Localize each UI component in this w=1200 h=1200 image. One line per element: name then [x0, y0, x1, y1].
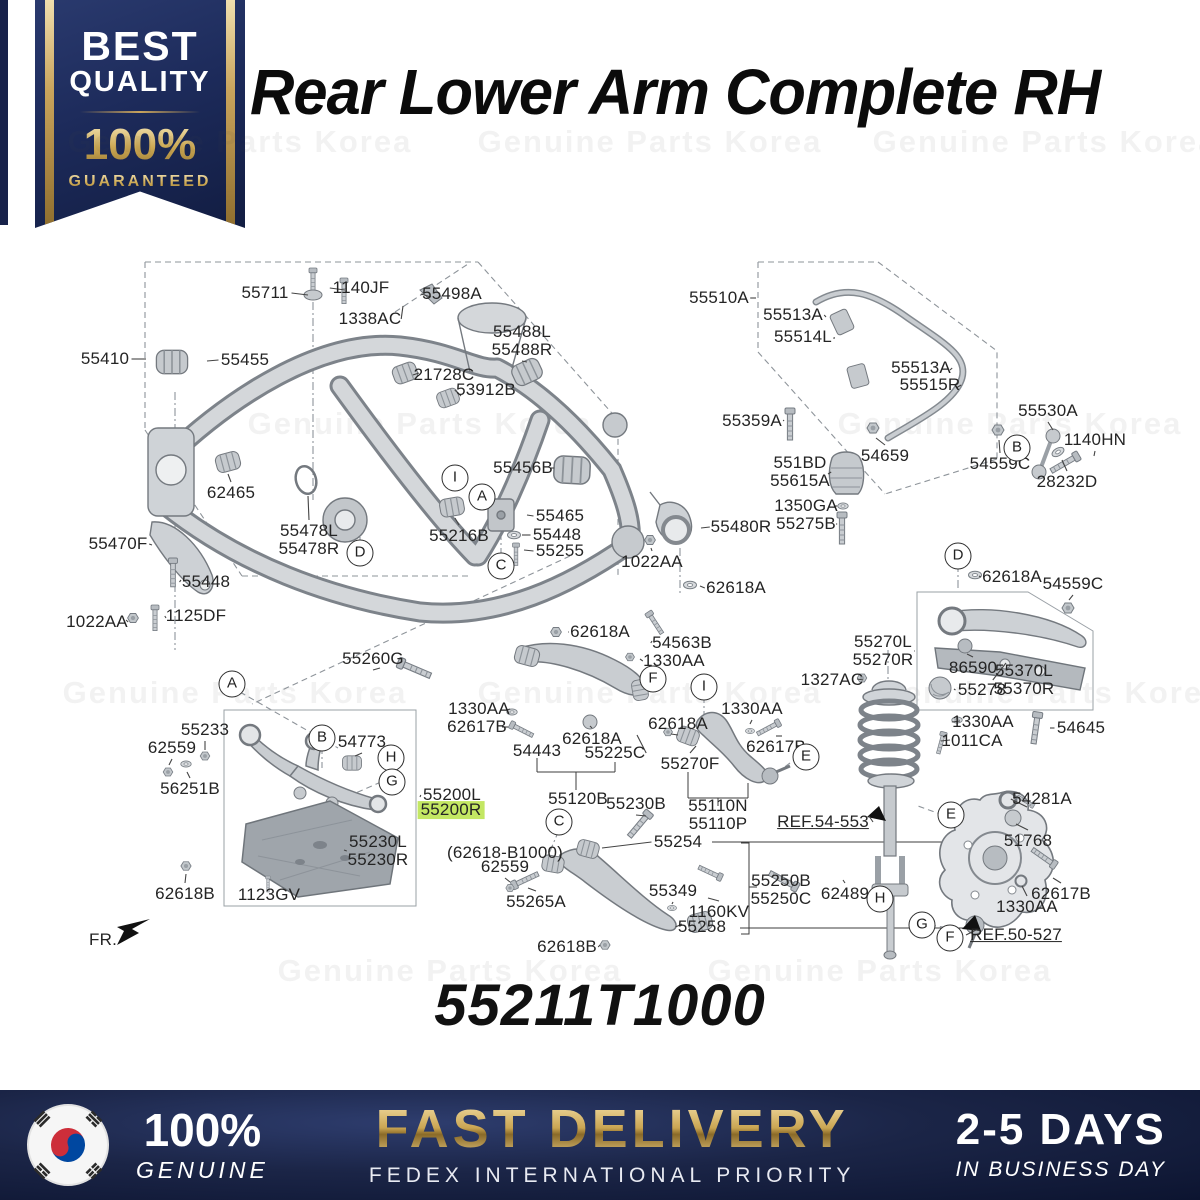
part-label-55200R: 55200R [418, 801, 485, 819]
part-number: 55211T1000 [0, 972, 1200, 1039]
part-label-55711: 55711 [241, 284, 288, 302]
part-label-54773: 54773 [338, 733, 386, 751]
part-label-55515R: 55515R [900, 376, 961, 394]
part-label-55278: 55278 [958, 681, 1006, 699]
part-label-1011CA: 1011CA [941, 732, 1002, 750]
part-label-1022AA: 1022AA [621, 553, 683, 571]
part-label-55470F: 55470F [89, 535, 148, 553]
part-label-55260G: 55260G [342, 650, 404, 668]
footer-fast-delivery: FAST DELIVERY [269, 1102, 956, 1156]
part-label-55265A: 55265A [506, 893, 566, 911]
callout-c: C [488, 553, 515, 580]
part-label-54281A: 54281A [1012, 790, 1072, 808]
part-label-55258: 55258 [678, 918, 726, 936]
part-label-1330AA: 1330AA [448, 700, 510, 718]
part-label-86590: 86590 [949, 659, 997, 677]
part-label-55225C: 55225C [585, 744, 646, 762]
footer-genuine-percent: 100% [136, 1107, 269, 1153]
part-label-62618A: 62618A [648, 715, 708, 733]
part-label-55254: 55254 [654, 833, 702, 851]
part-label-53912B: 53912B [456, 381, 516, 399]
part-label-62618B: 62618B [155, 885, 215, 903]
part-label-55120B: 55120B [548, 790, 608, 808]
best-quality-badge: BEST QUALITY 100% GUARANTEED [35, 0, 245, 228]
badge-guaranteed: GUARANTEED [35, 173, 245, 191]
part-label-55230B: 55230B [606, 795, 666, 813]
part-label-51768: 51768 [1004, 832, 1052, 850]
badge-divider [80, 111, 200, 113]
footer-banner: 100% GENUINE FAST DELIVERY FEDEX INTERNA… [0, 1090, 1200, 1200]
page-title: Rear Lower Arm Complete RH [250, 55, 1100, 129]
callout-c: C [546, 809, 573, 836]
badge-gold-stripe [226, 0, 235, 228]
part-label-55488L-55488R: 55488L 55488R [492, 323, 553, 359]
part-label-55255: 55255 [536, 542, 584, 560]
part-label-55465: 55465 [536, 507, 584, 525]
callout-e: E [938, 802, 965, 829]
part-label-55110N-55110P: 55110N 55110P [688, 797, 748, 833]
footer-genuine-label: GENUINE [136, 1157, 269, 1184]
part-label-56251B: 56251B [160, 780, 220, 798]
part-label-55275B: 55275B [776, 515, 836, 533]
callout-g: G [909, 912, 936, 939]
part-label-55349: 55349 [649, 882, 697, 900]
footer-days: 2-5 DAYS [956, 1108, 1167, 1152]
callout-b: B [309, 725, 336, 752]
part-label-54563B: 54563B [652, 634, 712, 652]
part-label-1327AC: 1327AC [801, 671, 864, 689]
callout-f: F [640, 666, 667, 693]
part-label-1123GV: 1123GV [238, 886, 300, 904]
part-label-1350GA: 1350GA [774, 497, 838, 515]
part-label-55233: 55233 [181, 721, 229, 739]
part-label-54559C: 54559C [1043, 575, 1104, 593]
callout-d: D [945, 543, 972, 570]
callout-f: F [937, 925, 964, 952]
watermark-text: Genuine Parts Korea [248, 406, 593, 442]
part-label-55270L-55270R: 55270L 55270R [853, 633, 914, 669]
callout-i: I [691, 674, 718, 701]
callout-a: A [219, 671, 246, 698]
callout-e: E [793, 744, 820, 771]
part-label-55455: 55455 [221, 351, 269, 369]
part-label-28232D: 28232D [1037, 473, 1098, 491]
badge-quality: QUALITY [35, 67, 245, 99]
watermark-text: Genuine Parts Korea [68, 124, 413, 160]
part-label-55270F: 55270F [661, 755, 720, 773]
part-label-1022AA: 1022AA [66, 613, 128, 631]
callout-b: B [1004, 435, 1031, 462]
callout-i: I [442, 465, 469, 492]
part-label-62489: 62489 [821, 885, 869, 903]
korea-flag-icon [26, 1103, 110, 1187]
part-label-62559: 62559 [148, 739, 196, 757]
part-label-62618A: 62618A [982, 568, 1042, 586]
part-label-551BD-55615A: 551BD 55615A [770, 454, 830, 490]
listing-image: BEST QUALITY 100% GUARANTEED Rear Lower … [0, 0, 1200, 1200]
part-label-62617B: 62617B [447, 718, 507, 736]
part-label-55478L-55478R: 55478L 55478R [279, 522, 340, 558]
part-label-1330AA: 1330AA [721, 700, 783, 718]
part-label-54659: 54659 [861, 447, 909, 465]
part-label-1140HN: 1140HN [1064, 431, 1126, 449]
callout-h: H [378, 745, 405, 772]
part-label-55230L-55230R: 55230L 55230R [348, 833, 409, 869]
part-label-REF-54-553: REF.54-553 [777, 813, 869, 831]
part-label-REF-50-527: REF.50-527 [970, 926, 1062, 944]
part-label-1338AC: 1338AC [339, 310, 402, 328]
part-label-55510A: 55510A [689, 289, 749, 307]
callout-a: A [469, 484, 496, 511]
footer-days-sub: IN BUSINESS DAY [956, 1158, 1167, 1182]
badge-best: BEST [35, 26, 245, 67]
watermark-text: Genuine Parts Korea [873, 124, 1200, 160]
footer-courier: FEDEX INTERNATIONAL PRIORITY [269, 1164, 956, 1188]
callout-d: D [347, 540, 374, 567]
part-label-55480R: 55480R [711, 518, 772, 536]
part-label-62618A: 62618A [706, 579, 766, 597]
part-label-55448: 55448 [182, 573, 230, 591]
part-label-62465: 62465 [207, 484, 255, 502]
part-label-1330AA: 1330AA [996, 898, 1058, 916]
part-label-55359A: 55359A [722, 412, 782, 430]
part-label-1125DF: 1125DF [166, 607, 226, 625]
part-label-55250B-55250C: 55250B 55250C [751, 872, 812, 908]
part-label-55514L: 55514L [774, 328, 832, 346]
part-label-62618A: 62618A [570, 623, 630, 641]
part-label-55513A: 55513A [763, 306, 823, 324]
part-label-55498A: 55498A [422, 285, 482, 303]
part-label-FR-: FR. [89, 931, 117, 949]
part-label-62618B: 62618B [537, 938, 597, 956]
part-label-55456B: 55456B [493, 459, 553, 477]
part-label-55410: 55410 [81, 350, 129, 368]
watermark-text: Genuine Parts Korea [478, 124, 823, 160]
part-label-54645: 54645 [1057, 719, 1105, 737]
part-label-55216B: 55216B [429, 527, 489, 545]
part-label-55530A: 55530A [1018, 402, 1078, 420]
part-label-54443: 54443 [513, 742, 561, 760]
edge-strip [0, 0, 8, 225]
callout-g: G [379, 769, 406, 796]
badge-gold-stripe [45, 0, 54, 228]
part-label-1140JF: 1140JF [333, 279, 390, 297]
part-label-1330AA: 1330AA [952, 713, 1014, 731]
part-label-62559: 62559 [481, 858, 529, 876]
callout-h: H [867, 886, 894, 913]
